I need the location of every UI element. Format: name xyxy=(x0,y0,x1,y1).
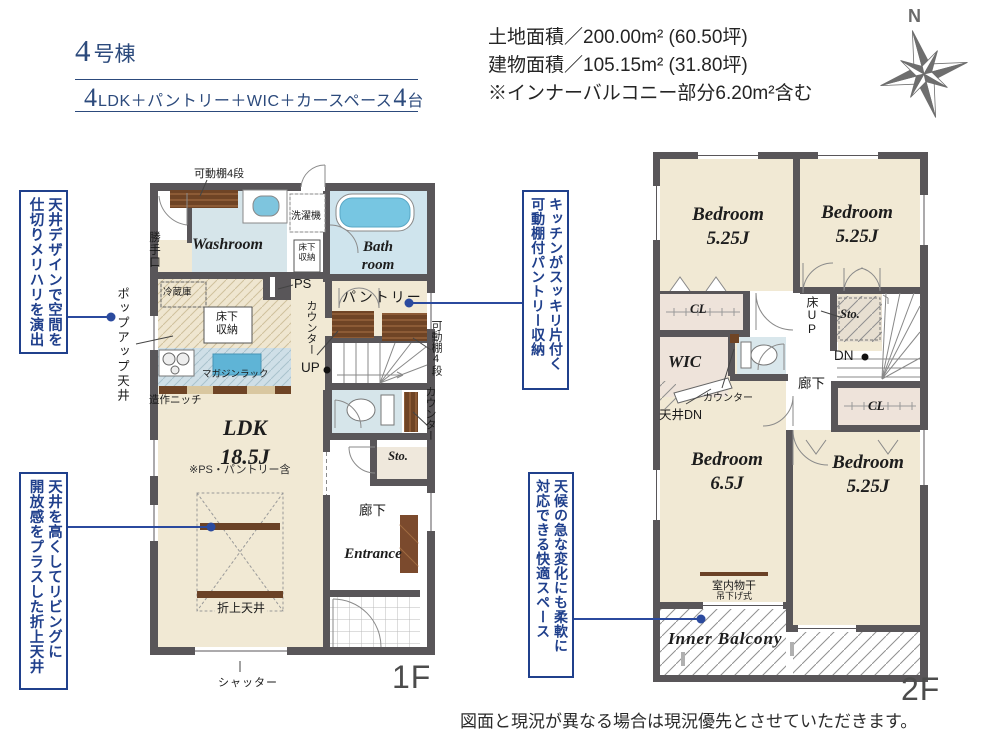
connector-overlay xyxy=(0,0,1000,750)
f2-floor-up-label: 床UP xyxy=(804,296,821,336)
f1-washer-label: 洗濯機 xyxy=(291,207,321,222)
f1-pantry-label: パントリー xyxy=(342,287,423,307)
f1-floor-storage-a-label: 床下 収納 xyxy=(293,243,321,263)
f1-storage-label: Sto. xyxy=(376,449,420,464)
callout-folded-ceiling: 天井を高くしてリビングに 開放感をプラスした折上天井 xyxy=(19,472,68,690)
f1-fridge-label: 冷蔵庫 xyxy=(163,284,192,298)
f2-counter-label: カウンター xyxy=(703,389,753,404)
f1-niche-label: 造作ニッチ xyxy=(149,392,202,407)
f1-hallway-label: 廊下 xyxy=(359,499,386,519)
f1-ps-label: PS xyxy=(294,276,311,291)
floor2-label: 2F xyxy=(901,671,940,708)
f2-inner-balcony-label: Inner Balcony xyxy=(668,629,783,649)
f2-drying-type-label: 吊下げ式 xyxy=(716,589,752,602)
callout-balcony-space: 天候の急な変化にも柔軟に 対応できる快適スペース xyxy=(528,472,574,678)
callout-pantry-shelf: キッチンがスッキリ片付く 可動棚付パントリー収納 xyxy=(522,190,569,390)
popup-ceiling-label: ポップアップ天井 xyxy=(113,287,132,403)
f2-bedroom-b-label: Bedroom 5.25J xyxy=(817,201,897,249)
f1-back-door-label: 勝手口 xyxy=(146,231,162,269)
f1-up-label: UP xyxy=(301,360,320,375)
f1-folded-ceiling-label: 折上天井 xyxy=(215,599,267,616)
f2-bedroom-d-label: Bedroom 5.25J xyxy=(828,451,908,499)
f1-shelf-right-label: 可動棚4段 xyxy=(428,320,444,376)
f2-dn-label: DN xyxy=(834,348,854,363)
f2-bedroom-a-label: Bedroom 5.25J xyxy=(688,203,768,251)
f1-washroom-label: Washroom xyxy=(175,236,280,254)
f2-hallway-label: 廊下 xyxy=(798,372,825,392)
f1-shutter-label: シャッター xyxy=(218,674,278,690)
f1-floor-storage-b-label: 床下 収納 xyxy=(204,311,250,337)
f2-ceiling-dn-label: 天井DN xyxy=(659,404,702,423)
f1-ldk-note-label: ※PS・パントリー含 xyxy=(189,461,290,477)
f2-bedroom-c-label: Bedroom 6.5J xyxy=(687,448,767,496)
f1-counter-a-label: カウンター xyxy=(303,300,319,355)
f1-bathroom-label: Bath room xyxy=(342,238,414,274)
f1-magazine-rack-label: マガジンラック xyxy=(202,366,269,380)
floorplan-page: { "header": { "building_num": "4", "buil… xyxy=(0,0,1000,750)
f2-cl-a-label: CL xyxy=(690,301,707,317)
f2-storage-label: Sto. xyxy=(840,307,860,322)
f1-entrance-label: Entrance xyxy=(333,546,413,563)
stair-direction-dots xyxy=(324,354,869,374)
f2-cl-b-label: CL xyxy=(868,398,885,414)
f1-counter-b-label: カウンター xyxy=(422,386,438,441)
f2-wic-label: WIC xyxy=(668,352,701,372)
callout-ceiling-design: 天井デザインで空間を 仕切りメリハリを演出 xyxy=(19,190,68,354)
floor1-label: 1F xyxy=(392,659,431,696)
f1-shelf-top-label: 可動棚4段 xyxy=(194,165,244,181)
disclaimer-text: 図面と現況が異なる場合は現況優先とさせていただきます。 xyxy=(460,707,917,732)
